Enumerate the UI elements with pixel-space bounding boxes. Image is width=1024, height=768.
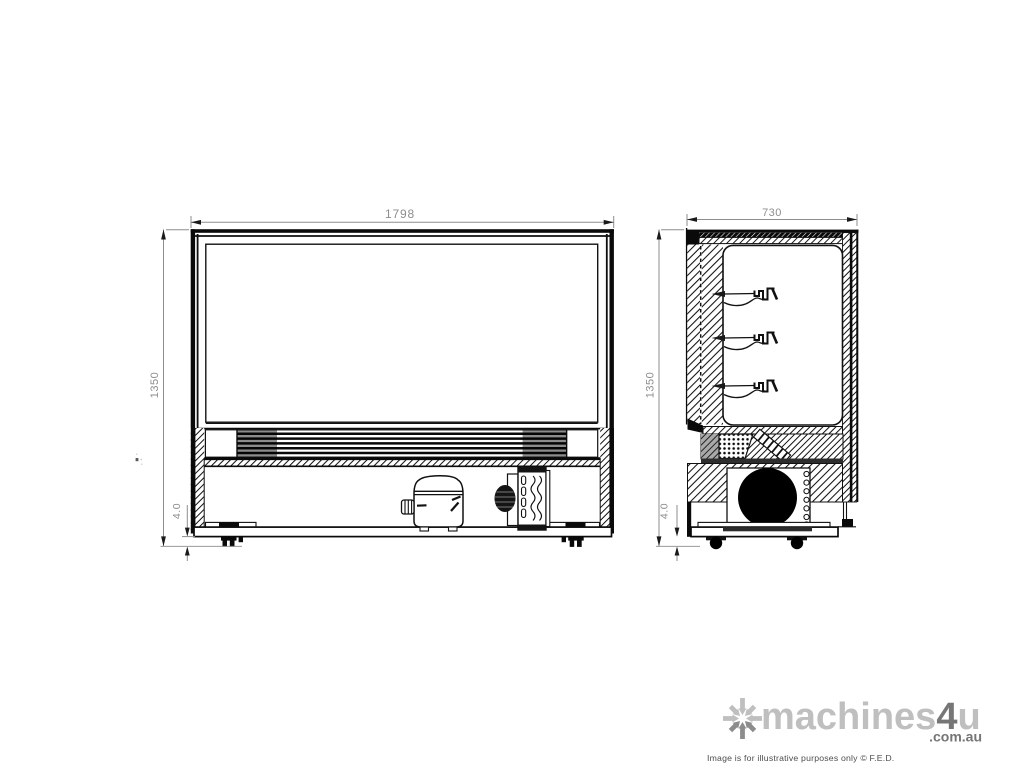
- svg-text:1798: 1798: [385, 207, 415, 221]
- svg-text:4.0: 4.0: [659, 503, 671, 519]
- svg-text:730: 730: [762, 207, 782, 219]
- svg-text:1350: 1350: [149, 372, 161, 398]
- svg-text:4.0: 4.0: [171, 503, 183, 519]
- svg-text:Image is for illustrative purp: Image is for illustrative purposes only …: [707, 753, 894, 763]
- svg-text:1350: 1350: [645, 372, 657, 398]
- svg-text:.com.au: .com.au: [929, 729, 982, 745]
